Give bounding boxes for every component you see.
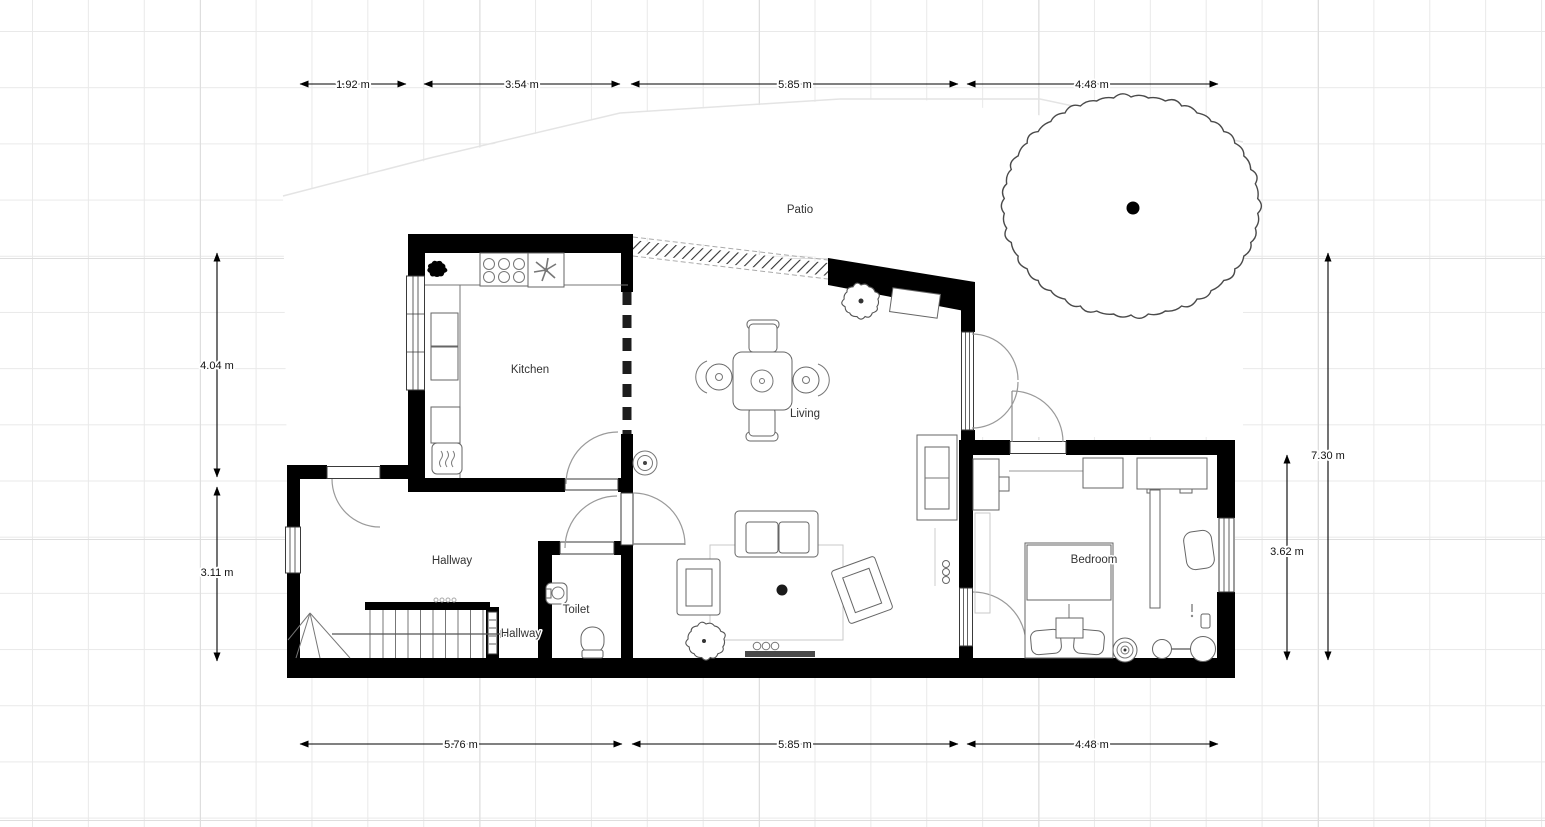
window-bedroom-right[interactable]	[1219, 518, 1234, 592]
pouf-chair[interactable]	[1182, 529, 1215, 571]
wardrobe[interactable]	[1137, 458, 1207, 493]
toilet-sink[interactable]	[546, 583, 567, 604]
dimensions-left: 4.04 m 3.11 m	[200, 253, 234, 661]
dimension-label: 4.48 m	[1075, 739, 1109, 751]
closet-partition[interactable]	[1150, 490, 1160, 608]
dimensions-right: 7.30 m 3.62 m	[1270, 253, 1345, 660]
stove-icon[interactable]	[480, 253, 528, 286]
room-label-toilet[interactable]: Toilet	[563, 604, 591, 616]
wall-switch[interactable]	[1201, 614, 1210, 628]
dimension-label: 5.76 m	[444, 739, 478, 751]
room-label-bedroom[interactable]: Bedroom	[1071, 554, 1118, 566]
floorplan-canvas[interactable]: Kitchen Living Patio Hallway Hallway Toi…	[0, 0, 1545, 827]
bookshelf[interactable]	[917, 435, 957, 520]
toilet-bowl[interactable]	[581, 627, 604, 658]
dimension-label: 7.30 m	[1311, 450, 1345, 462]
dimension-label: 4.04 m	[200, 360, 234, 372]
dimensions-bottom: 5.76 m 5.85 m 4.48 m	[300, 739, 1218, 751]
room-label-living[interactable]: Living	[790, 408, 820, 420]
dimension-label: 3.54 m	[505, 79, 539, 91]
sofa[interactable]	[735, 511, 818, 557]
dining-chair[interactable]	[793, 367, 819, 393]
dimension-label: 5.85 m	[778, 79, 812, 91]
armchair[interactable]	[677, 559, 720, 615]
oven-icon[interactable]	[432, 443, 462, 474]
room-label-hallway[interactable]: Hallway	[432, 555, 473, 567]
tv-screen[interactable]	[745, 651, 815, 657]
extractor-fan-icon[interactable]	[528, 253, 564, 287]
room-label-kitchen[interactable]: Kitchen	[511, 364, 549, 376]
room-label-patio[interactable]: Patio	[787, 204, 813, 216]
dimension-label: 3.62 m	[1270, 546, 1304, 558]
dimension-label: 5.85 m	[778, 739, 812, 751]
tree-trunk-dot	[1127, 202, 1140, 215]
dimensions-top: 1.92 m 3.54 m 5.85 m 4.48 m	[300, 79, 1218, 91]
dimension-label: 3.11 m	[201, 567, 234, 579]
speaker-light-icon[interactable]	[1113, 638, 1137, 662]
dimension-label: 1.92 m	[336, 79, 370, 91]
window-kitchen-left[interactable]	[407, 276, 425, 390]
sliding-door-stairs[interactable]	[488, 612, 497, 654]
side-table-dot[interactable]	[777, 585, 788, 596]
dining-chair[interactable]	[706, 364, 732, 390]
room-label-hallway-lower[interactable]: Hallway	[501, 628, 542, 640]
wardrobe[interactable]	[1083, 458, 1123, 488]
window-hallway-left[interactable]	[286, 527, 301, 573]
dining-table[interactable]	[733, 352, 792, 410]
dimension-label: 4.48 m	[1075, 79, 1109, 91]
